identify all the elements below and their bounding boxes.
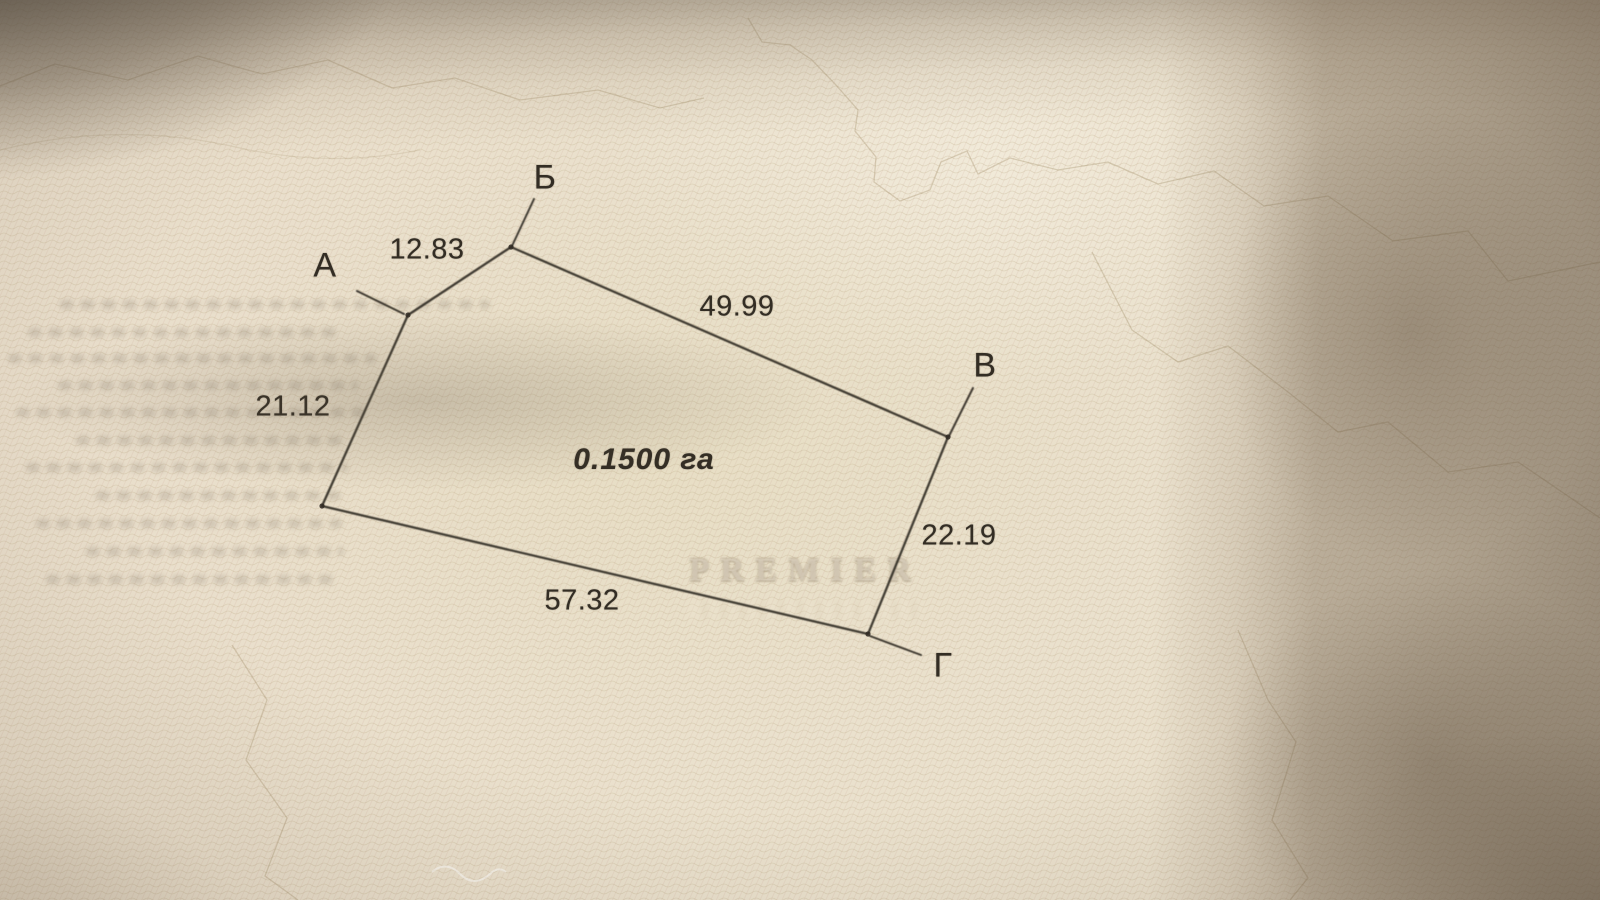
bleed-text-line: [28, 328, 338, 337]
vertex-label-a: А: [313, 247, 336, 286]
bleed-text-line: [58, 381, 358, 390]
watermark-text: PREMIER: [678, 553, 922, 590]
parcel-plan-drawing: [0, 0, 1600, 900]
shadow-right-blob-upper: [0, 0, 1600, 900]
shadow-top-left-corner: [0, 0, 1600, 900]
length-label-vg: 22.19: [921, 520, 996, 553]
length-label-ab: 12.83: [389, 234, 464, 267]
bleed-text-line: [36, 519, 342, 528]
paper-background: [0, 0, 1600, 900]
area-label: 0.1500 га: [573, 443, 714, 477]
shadow-right-band: [0, 0, 1600, 900]
vertex-label-g: Г: [934, 647, 953, 686]
bleed-text-line: [60, 300, 490, 309]
bleed-text-line: [86, 547, 344, 556]
shadow-right-blob-lower: [0, 0, 1600, 900]
watermark-second-line-blurred: [688, 601, 922, 619]
bleed-text-line: [26, 463, 348, 472]
bleed-text-line: [96, 491, 342, 500]
length-label-gd: 57.32: [544, 585, 619, 618]
document-photo: PREMIER А Б В Г 12.83 49.99 22.19 57.32 …: [0, 0, 1600, 900]
photo-vignette: [0, 0, 1600, 900]
pattern-boundary-lines: [0, 18, 1600, 900]
shadow-top-edge: [0, 0, 1600, 900]
bleed-through-text: [0, 0, 1600, 900]
white-scribble: [432, 866, 506, 881]
shadow-bottom-left-corner: [0, 0, 1600, 900]
bleed-text-line: [76, 436, 344, 445]
length-label-da: 21.12: [255, 391, 330, 424]
guilloche-pattern: [0, 0, 1600, 900]
length-label-bv: 49.99: [699, 291, 774, 324]
vertex-label-b: Б: [534, 159, 557, 198]
vertex-label-v: В: [973, 347, 996, 386]
bleed-text-line: [46, 575, 334, 584]
bleed-text-line: [8, 354, 376, 363]
shadow-bottom-right-corner: [0, 0, 1600, 900]
shadow-mid-left: [0, 0, 1600, 900]
